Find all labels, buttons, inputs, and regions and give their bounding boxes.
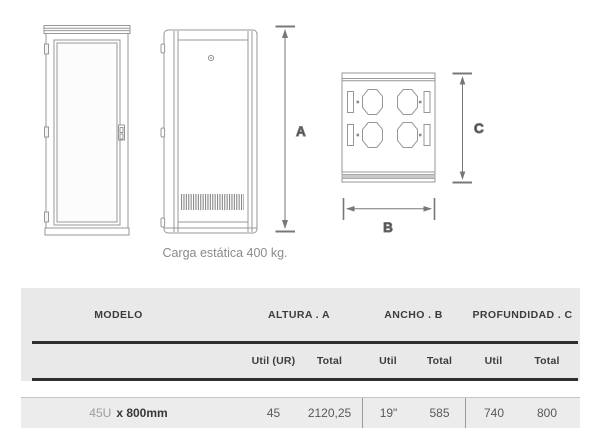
top-panel xyxy=(342,73,435,182)
mount-dot xyxy=(419,101,422,104)
subheader-profundidad-util: Util xyxy=(465,344,522,378)
cell-modelo: 45U x 800mm xyxy=(21,398,236,428)
glass-door-pane xyxy=(57,43,117,222)
subheader-spacer xyxy=(21,344,236,378)
table-row: 45U x 800mm 45 2120,25 19" 585 740 800 xyxy=(21,397,580,428)
mount-dot xyxy=(357,134,360,137)
cable-slot xyxy=(348,125,354,146)
cable-slot xyxy=(424,92,430,113)
dimension-c: C xyxy=(453,74,485,183)
front-base xyxy=(45,228,129,235)
arrowhead-down xyxy=(282,220,288,229)
cell-altura-total: 2120,25 xyxy=(311,398,362,428)
dimension-b: B xyxy=(344,198,435,235)
mount-dot xyxy=(419,134,422,137)
table-gap xyxy=(21,381,580,397)
subheader-ancho-total: Total xyxy=(414,344,465,378)
dimension-a-label: A xyxy=(296,124,306,139)
rack-spec-sheet: A C xyxy=(0,0,608,442)
panel-hole-center xyxy=(210,57,212,59)
rear-hinge xyxy=(161,128,165,137)
cable-entry-octagon xyxy=(398,90,418,115)
col-header-modelo: MODELO xyxy=(21,288,236,341)
cell-altura-util: 45 xyxy=(236,398,311,428)
arrowhead-right xyxy=(424,206,433,212)
subheader-row: Util (UR) Total Util Total Util Total xyxy=(21,344,580,378)
top-view-drawing xyxy=(342,73,435,182)
static-load-caption: Carga estática 400 kg. xyxy=(130,246,320,260)
front-top-cap xyxy=(44,26,130,34)
dimension-a: A xyxy=(276,27,307,232)
arrowhead-left xyxy=(346,206,355,212)
group-header-row: MODELO ALTURA . A ANCHO . B PROFUNDIDAD … xyxy=(21,288,580,341)
door-hinge xyxy=(45,212,49,222)
rear-hinge xyxy=(161,218,165,227)
model-units: 45U xyxy=(89,406,111,420)
subheader-altura-util: Util (UR) xyxy=(236,344,311,378)
front-view-drawing xyxy=(44,26,130,236)
subheader-altura-total: Total xyxy=(311,344,362,378)
dimension-c-label: C xyxy=(474,121,484,136)
col-header-ancho: ANCHO . B xyxy=(362,288,465,341)
cell-ancho-util: 19" xyxy=(362,398,414,428)
top-panel-bottom-strip xyxy=(342,175,435,179)
cell-ancho-total: 585 xyxy=(414,398,465,428)
dimension-b-label: B xyxy=(383,220,393,235)
model-size: x 800mm xyxy=(116,406,167,420)
col-header-altura: ALTURA . A xyxy=(236,288,362,341)
cell-profundidad-util: 740 xyxy=(465,398,522,428)
cable-slot xyxy=(348,92,354,113)
rear-hinge xyxy=(161,44,165,53)
arrowhead-up xyxy=(460,76,466,85)
subheader-profundidad-total: Total xyxy=(522,344,580,378)
subheader-ancho-util: Util xyxy=(362,344,414,378)
arrowhead-down xyxy=(460,172,466,181)
dimension-diagram: A C xyxy=(0,0,608,280)
cable-entry-octagon xyxy=(398,123,418,148)
col-header-profundidad: PROFUNDIDAD . C xyxy=(465,288,580,341)
cable-entry-octagon xyxy=(363,90,383,115)
spec-table: MODELO ALTURA . A ANCHO . B PROFUNDIDAD … xyxy=(21,288,580,428)
spec-table-header: MODELO ALTURA . A ANCHO . B PROFUNDIDAD … xyxy=(21,288,580,381)
cell-profundidad-total: 800 xyxy=(522,398,580,428)
cable-entry-octagon xyxy=(363,123,383,148)
cable-slot xyxy=(424,125,430,146)
arrowhead-up xyxy=(282,29,288,38)
rear-view-drawing xyxy=(161,30,257,233)
door-hinge xyxy=(45,127,49,137)
door-hinge xyxy=(45,44,49,54)
mount-dot xyxy=(357,101,360,104)
